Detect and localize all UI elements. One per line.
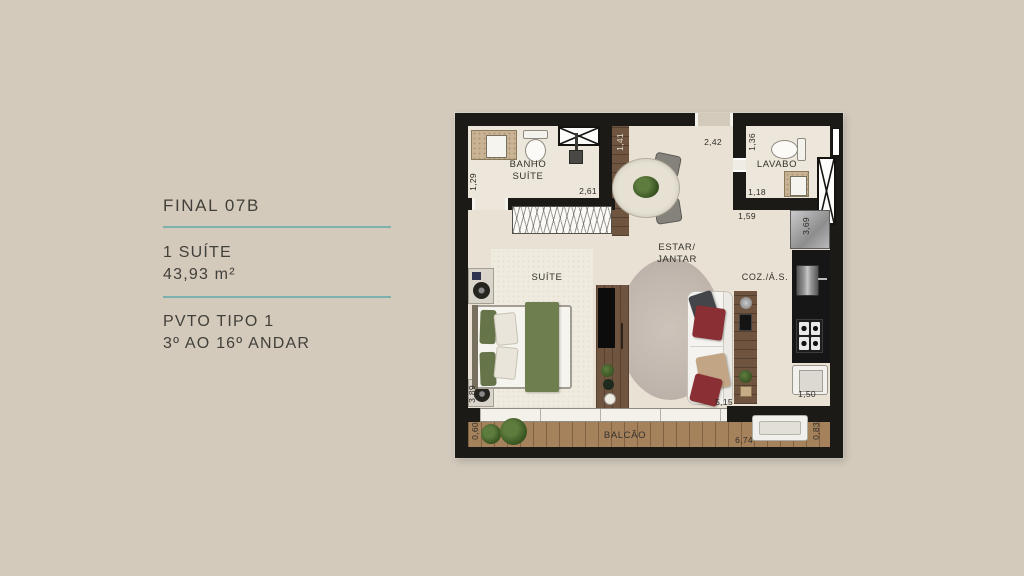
room-label-balcao: BALCÃO: [575, 430, 675, 442]
banho-door-opening: [472, 198, 508, 210]
dim-hall-depth: 1,41: [615, 126, 625, 158]
room-label-cozinha: COZ./Á.S.: [733, 272, 797, 284]
banho-sink: [486, 135, 507, 158]
sofa-seat-divider: [690, 346, 723, 347]
burner-icon: [811, 322, 821, 335]
kitchen-sink: [796, 265, 819, 296]
shower-stem: [575, 133, 578, 151]
dim-cozinha-depth: 3,69: [801, 209, 811, 243]
banho-vanity: [471, 130, 517, 160]
console-plant: [739, 370, 752, 383]
bed-pillow: [493, 346, 518, 380]
dim-banho-length: 2,61: [568, 186, 608, 196]
room-label-lavabo: LAVABO: [747, 159, 807, 171]
dim-balcao-depth: 0,60: [470, 416, 480, 446]
floor-plan: BANHO SUÍTE LAVABO ESTAR/ JANTAR SUÍTE C…: [455, 113, 843, 458]
dim-balcao-length: 6,74: [726, 435, 762, 445]
unit-info: 1 SUÍTE 43,93 m²: [163, 242, 391, 286]
table-plant: [633, 176, 659, 198]
shower-head: [569, 150, 583, 164]
console-frame: [739, 314, 752, 331]
bed-pillow: [493, 312, 518, 346]
cooktop: [796, 319, 823, 353]
burner-icon: [799, 322, 809, 335]
dim-estar-length: 5,15: [706, 397, 742, 407]
info-panel: FINAL 07B 1 SUÍTE 43,93 m² PVTO TIPO 1 3…: [163, 196, 391, 355]
dim-banho-width: 1,29: [468, 165, 478, 199]
wall-top: [455, 113, 843, 126]
unit-area: 43,93 m²: [163, 264, 391, 286]
bed-blanket: [525, 302, 559, 392]
divider-line: [163, 226, 391, 228]
unit-type: 1 SUÍTE: [163, 242, 391, 264]
lavabo-vanity: [784, 171, 809, 197]
floor-range: 3º AO 16º ANDAR: [163, 333, 391, 355]
dim-suite-width: 3,89: [467, 377, 477, 411]
wall-lavabo-south: [733, 198, 830, 210]
room-label-suite: SUÍTE: [517, 272, 577, 284]
divider-line: [163, 296, 391, 298]
wall-bottom: [455, 446, 843, 458]
dim-balcao-right: 0,83: [811, 416, 821, 446]
burner-icon: [799, 337, 809, 350]
wall-lavabo-west-upper: [733, 113, 746, 158]
console-basket: [740, 386, 752, 397]
banho-toilet-tank: [523, 130, 548, 139]
lavabo-toilet-tank: [797, 138, 806, 161]
panel-plant: [603, 379, 614, 390]
nightstand-decor: [472, 272, 481, 280]
panel-decor: [604, 393, 616, 405]
dim-lavabo-width: 1,36: [747, 125, 757, 159]
panel-plant: [601, 364, 614, 377]
dim-lavabo-length: 1,18: [739, 187, 775, 197]
lavabo-slot-window: [832, 128, 840, 156]
pavement-info: PVTO TIPO 1 3º AO 16º ANDAR: [163, 311, 391, 355]
balcony-plant: [481, 424, 501, 444]
suite-wardrobe: [512, 206, 612, 234]
table-lamp: [473, 282, 490, 299]
dim-lavabo-outer: 1,59: [729, 211, 765, 221]
bench-top: [759, 421, 801, 435]
console-decor: [740, 297, 752, 309]
lavabo-toilet: [771, 140, 798, 159]
tv: [598, 288, 615, 348]
room-label-estar-jantar: ESTAR/ JANTAR: [647, 242, 707, 265]
shower-window: [558, 126, 600, 146]
sofa-cushion-red: [692, 305, 726, 341]
dim-area-servico: 1,50: [789, 389, 825, 399]
kitchen-faucet: [818, 278, 827, 280]
balcony-plant: [500, 418, 527, 445]
nightstand: [468, 268, 494, 304]
burner-icon: [811, 337, 821, 350]
pavement-type: PVTO TIPO 1: [163, 311, 391, 333]
lavabo-door-opening: [733, 158, 746, 172]
plan-title: FINAL 07B: [163, 196, 391, 216]
entry-door-opening: [695, 113, 733, 126]
lavabo-sink: [790, 176, 807, 196]
room-label-banho-suite: BANHO SUÍTE: [493, 159, 563, 182]
dim-hall-width: 2,42: [693, 137, 733, 147]
panel-handle: [621, 323, 623, 349]
